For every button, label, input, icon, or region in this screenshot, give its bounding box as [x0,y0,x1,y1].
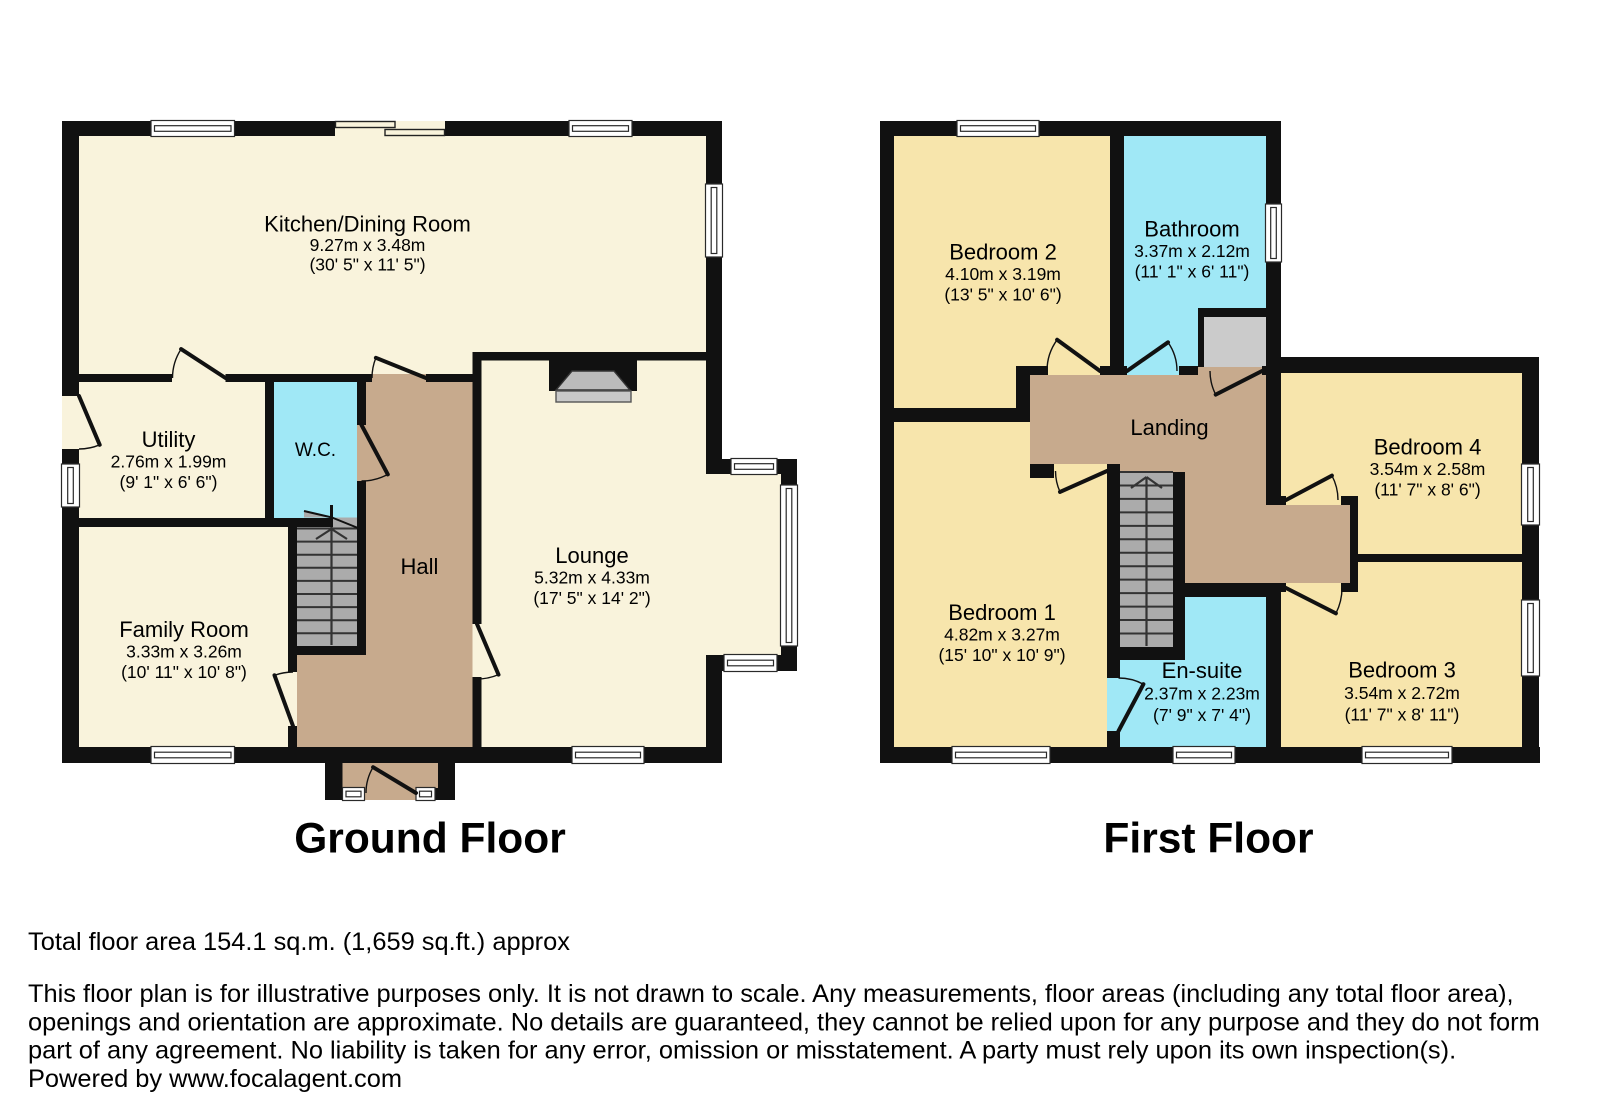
svg-text:This floor plan is for illustr: This floor plan is for illustrative purp… [28,980,1514,1008]
svg-text:(7' 9" x 7' 4"): (7' 9" x 7' 4") [1153,705,1251,725]
svg-text:Lounge: Lounge [555,543,628,568]
svg-text:(11' 7" x 8' 6"): (11' 7" x 8' 6") [1374,480,1480,500]
svg-text:(13' 5" x 10' 6"): (13' 5" x 10' 6") [944,285,1061,305]
svg-text:Bedroom 1: Bedroom 1 [948,600,1056,625]
svg-text:3.54m x 2.72m: 3.54m x 2.72m [1344,683,1460,703]
svg-text:2.37m x 2.23m: 2.37m x 2.23m [1144,684,1260,704]
svg-text:Bedroom 4: Bedroom 4 [1374,435,1482,460]
svg-text:W.C.: W.C. [295,440,336,461]
svg-text:5.32m x 4.33m: 5.32m x 4.33m [534,568,650,588]
svg-text:Landing: Landing [1130,415,1208,440]
svg-text:3.37m x 2.12m: 3.37m x 2.12m [1134,241,1250,261]
svg-text:(30' 5" x 11' 5"): (30' 5" x 11' 5") [309,255,425,275]
svg-text:4.82m x 3.27m: 4.82m x 3.27m [944,625,1060,645]
svg-text:En-suite: En-suite [1162,658,1243,683]
svg-text:Powered by www.focalagent.com: Powered by www.focalagent.com [28,1065,402,1093]
svg-text:First Floor: First Floor [1103,816,1313,863]
svg-text:Utility: Utility [142,427,196,452]
svg-text:4.10m x 3.19m: 4.10m x 3.19m [945,264,1061,284]
svg-text:Bedroom 3: Bedroom 3 [1348,658,1456,683]
svg-text:openings and orientation are a: openings and orientation are approximate… [28,1008,1540,1036]
svg-text:part of any agreement. No liab: part of any agreement. No liability is t… [28,1037,1456,1065]
svg-text:3.54m x 2.58m: 3.54m x 2.58m [1370,459,1486,479]
svg-text:2.76m x 1.99m: 2.76m x 1.99m [111,452,227,472]
svg-text:Family Room: Family Room [119,617,249,642]
svg-text:(15' 10" x 10' 9"): (15' 10" x 10' 9") [938,645,1065,665]
svg-text:(11' 7" x 8' 11"): (11' 7" x 8' 11") [1345,705,1460,725]
svg-text:3.33m x 3.26m: 3.33m x 3.26m [126,642,242,662]
svg-text:Hall: Hall [401,554,439,579]
svg-text:Ground Floor: Ground Floor [294,816,565,863]
svg-text:9.27m x 3.48m: 9.27m x 3.48m [310,235,426,255]
svg-text:Bathroom: Bathroom [1144,217,1239,242]
svg-text:(9' 1" x 6' 6"): (9' 1" x 6' 6") [120,472,218,492]
svg-text:Bedroom 2: Bedroom 2 [949,240,1057,265]
svg-text:Total floor area 154.1 sq.m. (: Total floor area 154.1 sq.m. (1,659 sq.f… [28,928,570,956]
svg-text:(11' 1" x 6' 11"): (11' 1" x 6' 11") [1135,262,1250,282]
svg-text:Kitchen/Dining Room: Kitchen/Dining Room [264,212,471,237]
svg-text:(17' 5" x 14' 2"): (17' 5" x 14' 2") [533,588,650,608]
svg-text:(10' 11" x 10' 8"): (10' 11" x 10' 8") [121,662,247,682]
